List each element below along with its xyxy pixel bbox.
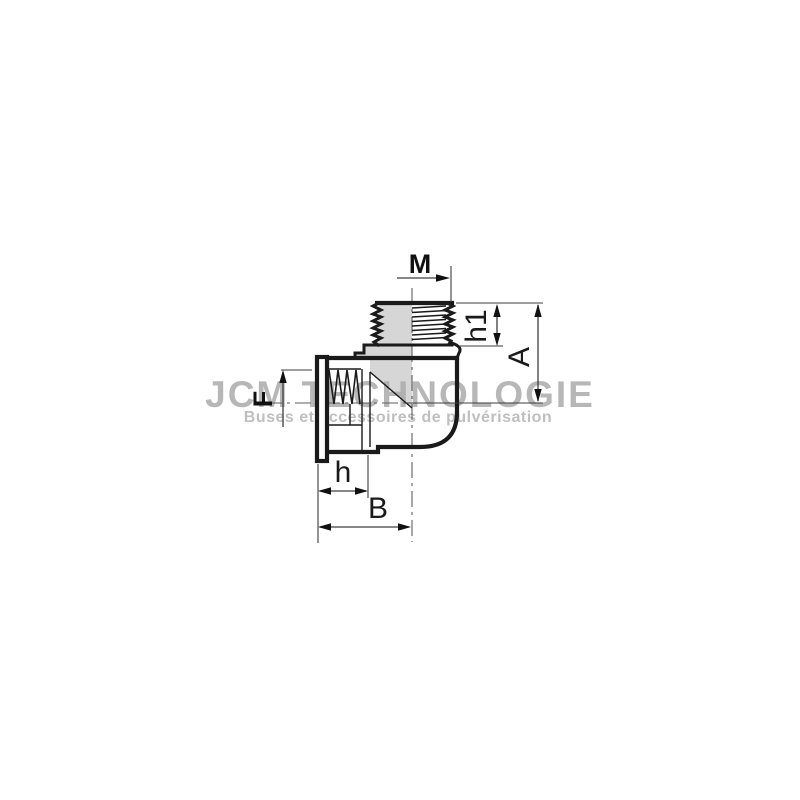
dimension-label-a: A: [503, 347, 536, 367]
dimension-label-h1: h1: [460, 309, 493, 342]
b-arrowhead-right: [398, 523, 411, 530]
h-arrowhead-left: [318, 487, 331, 494]
h1-arrowhead-top: [493, 304, 500, 317]
dimension-h1: h1: [459, 304, 503, 346]
dimension-b: B: [318, 492, 411, 531]
dimension-m: M: [397, 249, 451, 302]
dimension-label-b: B: [368, 492, 388, 525]
technical-drawing-canvas: JCM TECHNOLOGIE Buses et accessoires de …: [0, 0, 800, 800]
male-thread-lines: [412, 306, 446, 340]
h-arrowhead-right: [355, 487, 368, 494]
elbow-fitting-diagram: JCM TECHNOLOGIE Buses et accessoires de …: [0, 0, 800, 800]
male-thread-right-sawtooth: [445, 303, 453, 344]
dimension-h: h: [318, 455, 368, 543]
female-flange: [317, 357, 327, 461]
male-thread-left-sawtooth: [373, 303, 381, 345]
watermark-subtitle: Buses et accessoires de pulvérisation: [244, 409, 552, 426]
dimension-label-f: F: [248, 391, 278, 408]
dimension-label-m: M: [409, 249, 432, 279]
b-arrowhead-left: [318, 523, 331, 530]
m-arrowhead: [436, 274, 450, 282]
h1-arrowhead-bottom: [493, 333, 500, 346]
a-arrowhead-top: [534, 304, 541, 317]
dimension-label-h: h: [335, 456, 352, 489]
